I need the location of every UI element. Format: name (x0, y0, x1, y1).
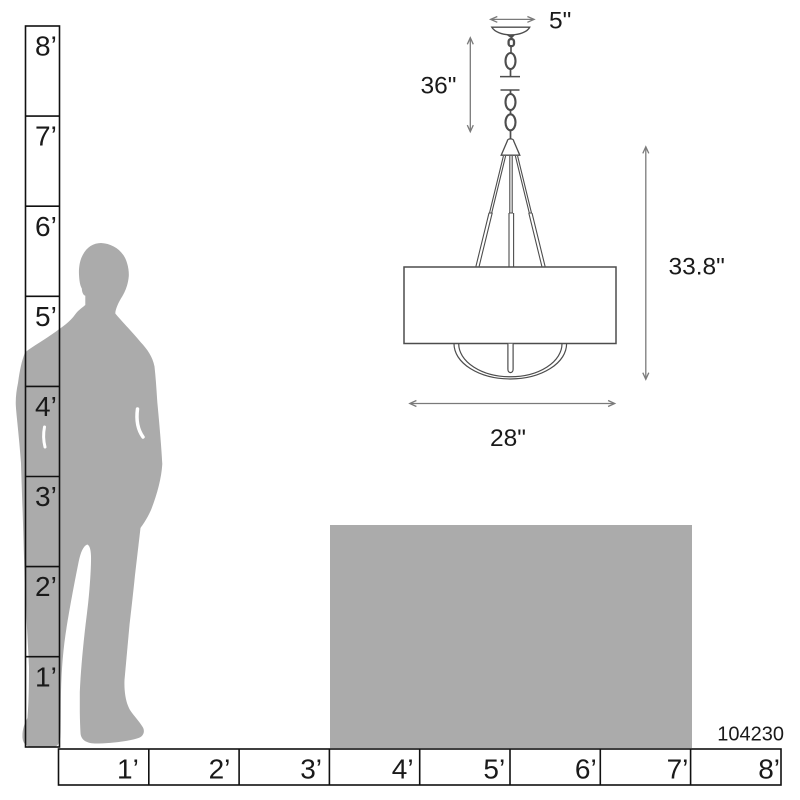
svg-text:1’: 1’ (117, 754, 139, 785)
svg-text:3’: 3’ (35, 481, 57, 512)
svg-text:6’: 6’ (575, 754, 597, 785)
svg-text:28": 28" (490, 425, 526, 452)
svg-text:2’: 2’ (209, 754, 231, 785)
svg-text:6’: 6’ (35, 211, 57, 242)
svg-text:5’: 5’ (35, 301, 57, 332)
svg-text:36": 36" (421, 72, 457, 99)
svg-text:3’: 3’ (300, 754, 322, 785)
svg-text:4’: 4’ (35, 391, 57, 422)
svg-text:33.8": 33.8" (669, 254, 725, 281)
svg-text:7’: 7’ (35, 121, 57, 152)
svg-text:4’: 4’ (392, 754, 414, 785)
svg-text:8’: 8’ (758, 754, 780, 785)
svg-text:8’: 8’ (35, 31, 57, 62)
svg-text:7’: 7’ (667, 754, 689, 785)
svg-text:1’: 1’ (35, 661, 57, 692)
svg-text:2’: 2’ (35, 571, 57, 602)
svg-text:5": 5" (549, 7, 571, 34)
svg-text:5’: 5’ (483, 754, 505, 785)
svg-text:104230: 104230 (717, 723, 784, 745)
